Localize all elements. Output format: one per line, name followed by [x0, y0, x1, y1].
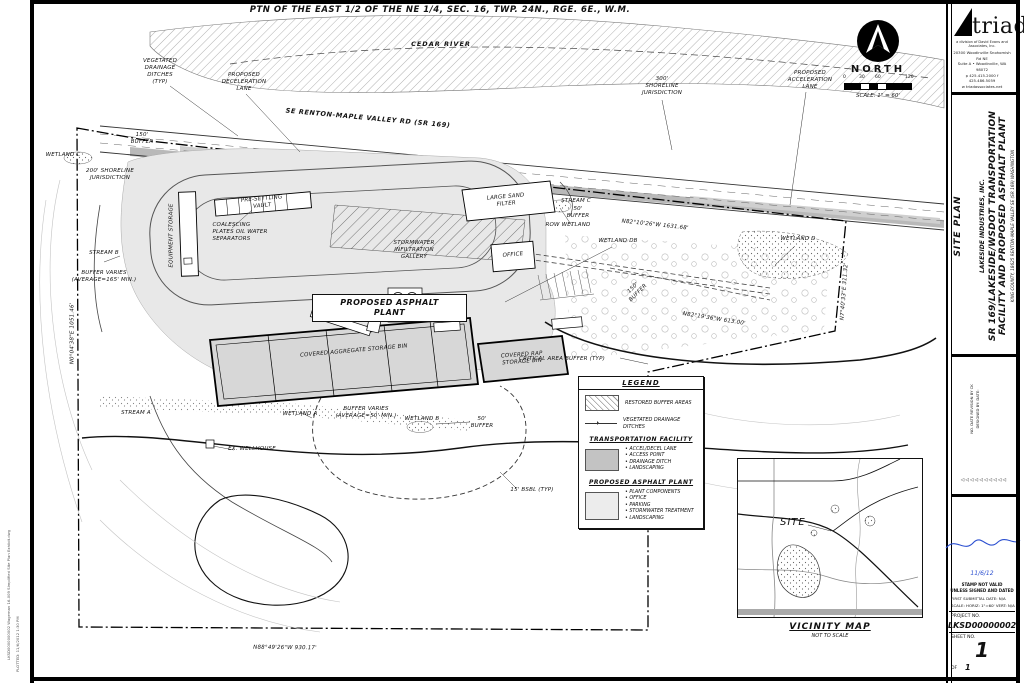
project-no-label: PROJECT NO.: [951, 614, 1015, 619]
legend-plant-items: • PLANT COMPONENTS • OFFICE • PARKING • …: [625, 490, 694, 522]
of-label: OF: [951, 666, 957, 671]
of-no: 1: [965, 663, 971, 672]
frame-bottom: [30, 677, 1018, 681]
frame-left: [30, 0, 34, 683]
frame-right: [1016, 0, 1020, 683]
label-wellhouse: EX. WELLHOUSE: [228, 446, 276, 453]
label-shoreline-300: 300' SHORELINE JURISDICTION: [642, 76, 682, 97]
label-bearing-bottom: N88°49'26"W 930.17': [253, 645, 317, 652]
label-vegetated-ditches: VEGETATED DRAINAGE DITCHES (TYP): [143, 58, 177, 86]
label-wetland-b: WETLAND B: [405, 416, 440, 423]
revision-delta-icons: ◁◁◁◁◁◁◁◁◁◁: [953, 478, 1015, 483]
vicinity-subtitle: NOT TO SCALE: [737, 633, 923, 639]
label-buffer-50-b: 50' BUFFER: [471, 416, 494, 430]
frame-top: [30, 0, 1018, 4]
triad-address: 20300 Woodinville Snohomish Rd NE Suite …: [952, 50, 1012, 90]
left-margin: LKSD0000000002 Wageman 16-009 Simplified…: [0, 0, 30, 683]
scale-ticks: 0 30 60 120: [839, 75, 917, 80]
legend-ditch-line-symbol: [585, 423, 617, 425]
legend-swatch-transportation: [585, 449, 619, 471]
vicinity-map-canvas: SITE: [737, 458, 923, 618]
scale-label: SCALE: 1" = 60': [838, 93, 918, 99]
project-location: KING COUNTY, 18625 RENTON-MAPLE VALLEY S…: [1010, 150, 1015, 302]
label-wetland-db: WETLAND DB: [598, 238, 637, 245]
label-equipment-storage: EQUIPMENT STORAGE: [169, 203, 176, 267]
vicinity-map: SITE VICINITY MAP NOT TO SCALE: [737, 458, 923, 639]
project-title-line2: FACILITY AND PROPOSED ASPHALT PLANT: [998, 117, 1008, 335]
legend-swatch-plant: [585, 492, 619, 520]
label-cedar-river: CEDAR RIVER: [411, 40, 471, 48]
cedar-river-area: [150, 15, 944, 108]
legend-title: LEGEND: [579, 377, 703, 390]
triad-logo-block: triad a division of David Evans and Asso…: [952, 8, 1012, 90]
project-title-line1: SR 169/LAKESIDE/WSDOT TRANSPORTATION: [988, 111, 998, 341]
wellhouse-bldg: [206, 440, 214, 448]
section-title: PTN OF THE EAST 1/2 OF THE NE 1/4, SEC. …: [40, 5, 840, 15]
north-arrow-icon: [857, 20, 899, 62]
legend-transportation-heading: TRANSPORTATION FACILITY: [585, 436, 697, 443]
drawing-area: PTN OF THE EAST 1/2 OF THE NE 1/4, SEC. …: [0, 0, 1024, 683]
stamp-note-2: UNLESS SIGNED AND DATED: [948, 588, 1016, 594]
stamp-date: 11/6/12: [948, 570, 1016, 577]
revision-table: NO. DATE REVISION BY CK DESIGNED BY: DAT…: [951, 362, 1017, 474]
label-stream-c: STREAM C: [561, 198, 591, 205]
label-stream-a: STREAM A: [121, 410, 151, 417]
title-block: triad a division of David Evans and Asso…: [946, 0, 1020, 683]
label-decel-lane: PROPOSED DECELERATION LANE: [222, 72, 267, 93]
label-buffer-165: BUFFER VARIES (AVERAGE=165' MIN.): [72, 270, 137, 284]
north-label: NORTH: [838, 64, 918, 75]
sheet-no: 1: [948, 638, 1016, 662]
label-coalescing: COALESCING PLATES OIL WATER SEPARATORS: [213, 222, 268, 243]
edge-stamp-plot: PLOTTED: 11/6/2012 1:30 PM: [15, 616, 20, 672]
label-buffer-150: 150' BUFFER: [131, 132, 154, 146]
legend-restored-label: RESTORED BUFFER AREAS: [625, 400, 692, 407]
wetland-b-area: [407, 422, 433, 433]
north-arrow: NORTH 0 30 60 120 SCALE: 1" = 60': [838, 20, 918, 99]
label-wetland-c: WETLAND C: [46, 152, 81, 159]
label-wetland-d: WETLAND D: [780, 236, 815, 243]
sheet-title: SITE PLAN: [953, 195, 963, 256]
label-accel-lane: PROPOSED ACCELERATION LANE: [788, 70, 832, 91]
legend-plant-heading: PROPOSED ASPHALT PLANT: [585, 479, 697, 486]
first-submittal: FIRST SUBMITTAL DATE: N/A: [951, 596, 1015, 602]
scale-bar: [844, 83, 912, 90]
stamp-note-1: STAMP NOT VALID: [948, 582, 1016, 588]
label-critical-buffer: CRITICAL AREA BUFFER (TYP): [519, 356, 605, 363]
label-stream-b: STREAM B: [89, 250, 119, 257]
project-title-block: SITE PLAN LAKESIDE INDUSTRIES, INC. SR 1…: [951, 100, 1017, 352]
label-row-wetland: ROW WETLAND: [546, 222, 591, 229]
edge-stamp-file: LKSD0000000002 Wageman 16-009 Simplified…: [6, 530, 11, 660]
label-gallery: STORMWATER INFILTRATION GALLERY: [394, 240, 435, 261]
client-name: LAKESIDE INDUSTRIES, INC.: [979, 179, 986, 273]
revision-headers: NO. DATE REVISION BY CK DESIGNED BY: DAT…: [969, 359, 999, 459]
label-bearing-left: N0°04'38"E 1051.46': [70, 303, 77, 365]
label-shoreline-200: 200' SHORELINE JURISDICTION: [86, 168, 134, 182]
legend-transportation-items: • ACCEL/DECEL LANE • ACCESS POINT • DRAI…: [625, 447, 677, 473]
label-buffer-50-c: 50' BUFFER: [567, 206, 590, 220]
project-no: LKSD00000002: [948, 621, 1016, 630]
vicinity-site-label: SITE: [780, 517, 806, 528]
triad-tagline: a division of David Evans and Associates…: [952, 40, 1012, 48]
legend: LEGEND RESTORED BUFFER AREAS VEGETATED D…: [578, 376, 704, 529]
label-buffer-50-avg: BUFFER VARIES (AVERAGE=50' MIN.): [335, 406, 396, 420]
label-proposed-asphalt-plant: PROPOSED ASPHALT PLANT: [312, 294, 467, 322]
triad-logo-icon: [954, 8, 972, 36]
legend-swatch-restored-buffer: [585, 395, 619, 411]
label-bsbl: 15' BSBL (TYP): [510, 487, 553, 494]
legend-ditch-label: VEGETATED DRAINAGE DITCHES: [623, 417, 680, 430]
vicinity-title: VICINITY MAP: [737, 622, 923, 632]
label-wetland-a: WETLAND A: [283, 411, 318, 418]
scale-line: SCALE: HORIZ: 1"=60' VERT: N/A: [951, 603, 1015, 609]
site-plan-sheet: PTN OF THE EAST 1/2 OF THE NE 1/4, SEC. …: [0, 0, 1024, 683]
